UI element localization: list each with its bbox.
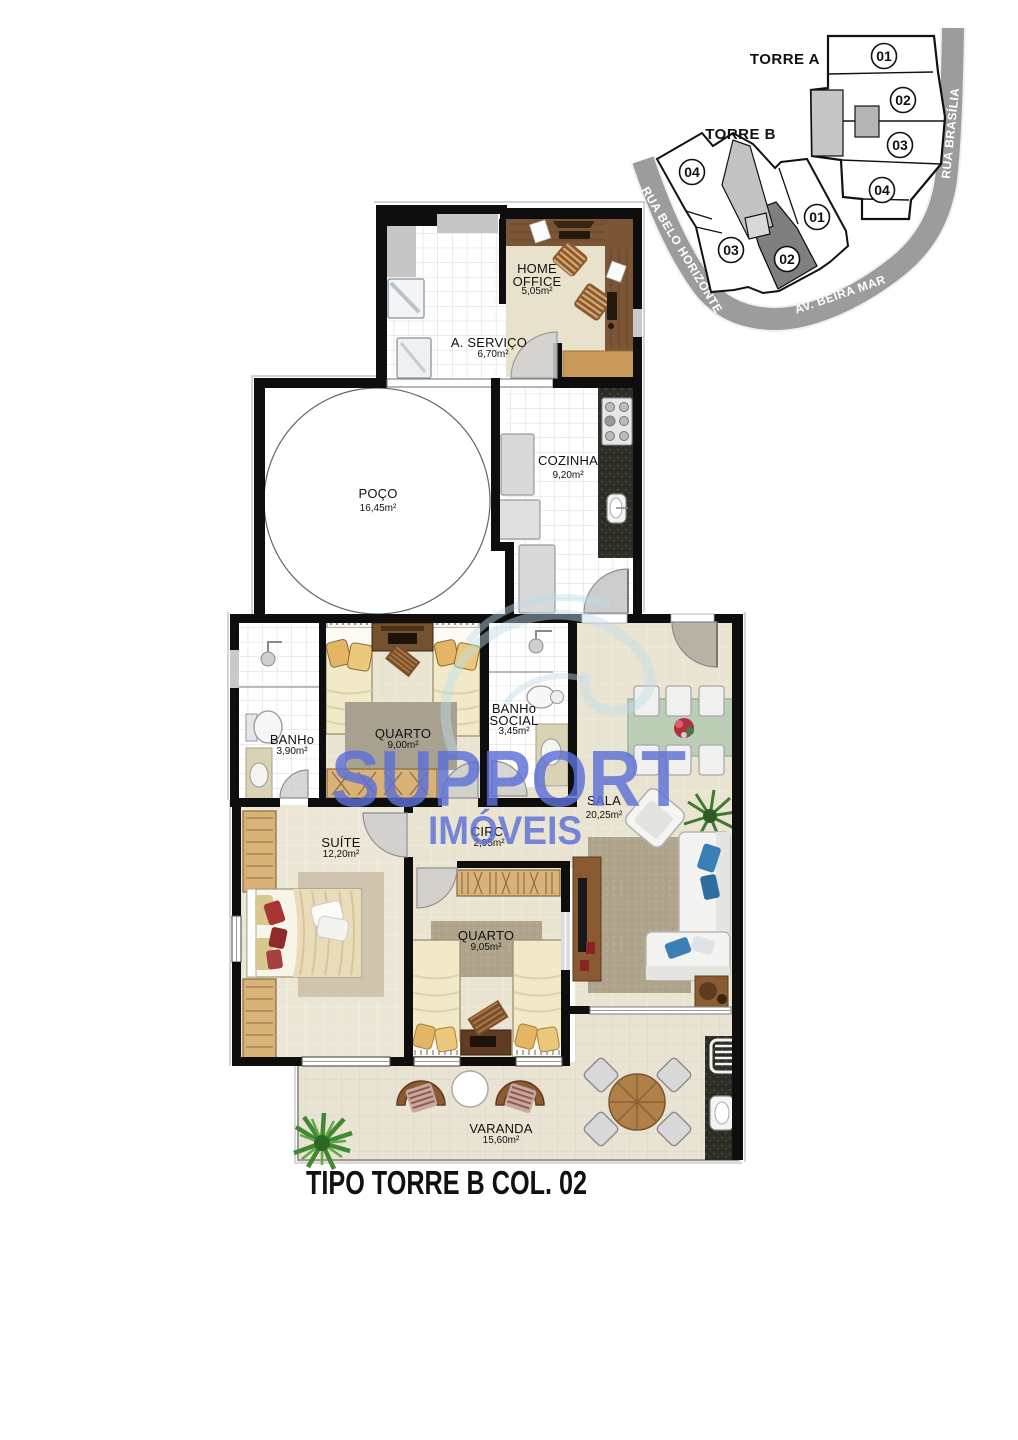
svg-text:3,90m²: 3,90m²: [276, 746, 308, 757]
svg-text:04: 04: [684, 164, 700, 180]
svg-text:03: 03: [723, 242, 739, 258]
svg-text:IMÓVEIS: IMÓVEIS: [428, 807, 582, 853]
svg-text:12,20m²: 12,20m²: [323, 849, 360, 860]
svg-text:02: 02: [779, 251, 795, 267]
svg-text:01: 01: [876, 48, 892, 64]
svg-text:POÇO: POÇO: [358, 486, 397, 501]
svg-text:9,20m²: 9,20m²: [552, 470, 584, 481]
svg-text:VARANDA: VARANDA: [469, 1121, 532, 1136]
svg-text:TORRE A: TORRE A: [750, 51, 820, 68]
svg-text:01: 01: [809, 209, 825, 225]
svg-text:COZINHA: COZINHA: [538, 453, 598, 468]
svg-text:04: 04: [874, 182, 890, 198]
svg-text:03: 03: [892, 137, 908, 153]
svg-text:BANHo: BANHo: [270, 732, 314, 747]
svg-text:5,05m²: 5,05m²: [521, 286, 553, 297]
svg-text:A. SERVIÇO: A. SERVIÇO: [451, 335, 527, 350]
svg-text:QUARTO: QUARTO: [458, 928, 514, 943]
svg-text:6,70m²: 6,70m²: [477, 349, 509, 360]
svg-text:15,60m²: 15,60m²: [483, 1135, 520, 1146]
svg-text:02: 02: [895, 92, 911, 108]
svg-text:TIPO TORRE B COL. 02: TIPO TORRE B COL. 02: [306, 1165, 587, 1202]
svg-text:16,45m²: 16,45m²: [360, 503, 397, 514]
svg-text:9,05m²: 9,05m²: [470, 942, 502, 953]
svg-text:TORRE B: TORRE B: [705, 126, 776, 143]
svg-text:SUÍTE: SUÍTE: [321, 835, 360, 850]
